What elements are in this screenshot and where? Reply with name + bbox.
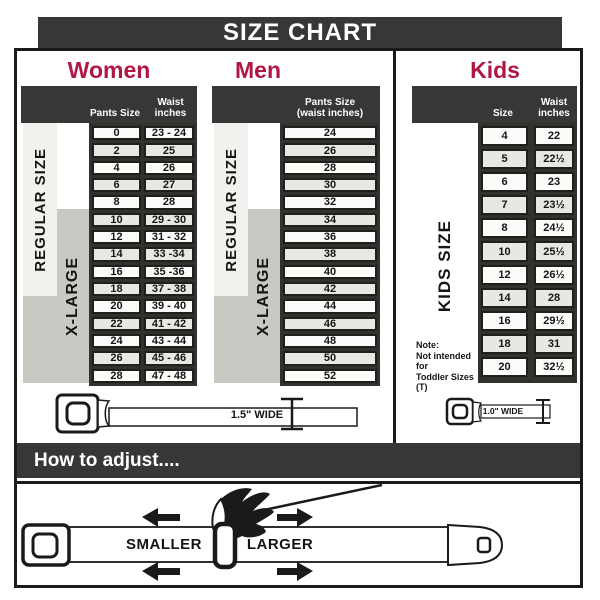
women-col-waist: Waist inches: [144, 97, 197, 119]
smaller-label: SMALLER: [111, 536, 217, 553]
table-cell: 22: [92, 317, 141, 331]
table-cell: 28: [534, 288, 574, 308]
larger-label: LARGER: [227, 536, 333, 553]
table-cell: 2: [92, 143, 141, 157]
kids-waist-column: 2222½2323½24½25½26½2829½3132½: [534, 126, 574, 380]
table-cell: 31 - 32: [144, 230, 194, 244]
kids-size-table: Size Waist inches KIDS SIZE Note: Not in…: [412, 86, 577, 383]
table-cell: 25½: [534, 241, 574, 261]
table-cell: 29½: [534, 311, 574, 331]
adult-belt-width-label: 1.5" WIDE: [224, 409, 290, 421]
women-waist-column: 23 - 242526272829 - 3031 - 3233 -3435 -3…: [144, 126, 194, 386]
table-cell: 47 - 48: [144, 369, 194, 383]
table-cell: 0: [92, 126, 141, 140]
table-cell: 24: [92, 334, 141, 348]
table-cell: 48: [283, 334, 377, 348]
men-regular-label: REGULAR SIZE: [223, 148, 240, 272]
table-cell: 36: [283, 230, 377, 244]
table-cell: 10: [92, 213, 141, 227]
table-cell: 32½: [534, 357, 574, 377]
smaller-arrow-bottom: [142, 562, 180, 581]
table-cell: 18: [481, 334, 528, 354]
table-cell: 8: [481, 218, 528, 238]
table-cell: 6: [92, 178, 141, 192]
table-cell: 4: [92, 161, 141, 175]
table-cell: 26: [283, 143, 377, 157]
kids-size-column: 45678101214161820: [481, 126, 528, 380]
table-cell: 43 - 44: [144, 334, 194, 348]
kids-panel-divider: [393, 51, 396, 443]
table-cell: 26½: [534, 265, 574, 285]
table-cell: 41 - 42: [144, 317, 194, 331]
belt-tip: [448, 525, 502, 565]
table-cell: 26: [92, 351, 141, 365]
table-cell: 35 -36: [144, 265, 194, 279]
page-title: SIZE CHART: [223, 19, 377, 47]
table-cell: 8: [92, 195, 141, 209]
table-cell: 28: [283, 161, 377, 175]
table-cell: 27: [144, 178, 194, 192]
table-cell: 5: [481, 149, 528, 169]
table-cell: 16: [92, 265, 141, 279]
table-cell: 39 - 40: [144, 299, 194, 313]
table-cell: 46: [283, 317, 377, 331]
larger-arrow-top: [277, 508, 313, 527]
kids-col-waist: Waist inches: [531, 97, 577, 119]
adjust-illustration: [17, 484, 580, 585]
table-cell: 14: [92, 247, 141, 261]
chart-panel: Women Men Kids Pants Size Waist inches X…: [14, 48, 583, 588]
table-cell: 23 - 24: [144, 126, 194, 140]
table-cell: 32: [283, 195, 377, 209]
table-cell: 25: [144, 143, 194, 157]
table-cell: 12: [92, 230, 141, 244]
table-cell: 38: [283, 247, 377, 261]
table-cell: 37 - 38: [144, 282, 194, 296]
table-cell: 20: [481, 357, 528, 377]
table-cell: 4: [481, 126, 528, 146]
table-cell: 6: [481, 172, 528, 192]
table-cell: 14: [481, 288, 528, 308]
table-cell: 18: [92, 282, 141, 296]
table-cell: 7: [481, 195, 528, 215]
table-cell: 20: [92, 299, 141, 313]
table-cell: 23: [534, 172, 574, 192]
men-pants-size-column: 242628303234363840424446485052: [283, 126, 377, 386]
table-cell: 50: [283, 351, 377, 365]
table-cell: 42: [283, 282, 377, 296]
adult-belt-illustration: [50, 392, 365, 436]
table-cell: 29 - 30: [144, 213, 194, 227]
table-cell: 40: [283, 265, 377, 279]
men-col-pants-size: Pants Size (waist inches): [280, 97, 380, 119]
kids-table-header: Size Waist inches: [412, 86, 577, 123]
women-size-table: Pants Size Waist inches X-LARGE REGULAR …: [21, 86, 197, 386]
table-cell: 24½: [534, 218, 574, 238]
table-cell: 44: [283, 299, 377, 313]
kids-belt-width-label: 1.0" WIDE: [473, 406, 533, 416]
table-cell: 33 -34: [144, 247, 194, 261]
size-chart-page: SIZE CHART Women Men Kids Pants Size Wai…: [0, 0, 600, 600]
table-cell: 22: [534, 126, 574, 146]
table-cell: 22½: [534, 149, 574, 169]
table-cell: 24: [283, 126, 377, 140]
men-regular-band: REGULAR SIZE: [214, 123, 248, 296]
how-to-adjust-bar: How to adjust....: [17, 443, 580, 478]
table-cell: 26: [144, 161, 194, 175]
table-cell: 52: [283, 369, 377, 383]
smaller-arrow-top: [142, 508, 180, 527]
women-table-header: Pants Size Waist inches: [21, 86, 197, 123]
women-regular-label: REGULAR SIZE: [32, 148, 49, 272]
kids-size-band-label: KIDS SIZE: [435, 220, 455, 312]
how-to-adjust-title: How to adjust....: [17, 450, 180, 472]
table-cell: 34: [283, 213, 377, 227]
men-table-header: Pants Size (waist inches): [212, 86, 380, 123]
women-regular-band: REGULAR SIZE: [23, 123, 57, 296]
table-cell: 28: [92, 369, 141, 383]
table-cell: 30: [283, 178, 377, 192]
women-heading: Women: [21, 56, 197, 84]
kids-note: Note: Not intended for Toddler Sizes (T): [416, 340, 480, 393]
larger-arrow-bottom: [277, 562, 313, 581]
table-cell: 16: [481, 311, 528, 331]
table-cell: 10: [481, 241, 528, 261]
women-col-pants-size: Pants Size: [89, 108, 141, 119]
kids-heading: Kids: [435, 56, 555, 84]
women-pants-size-column: 0246810121416182022242628: [92, 126, 141, 386]
table-cell: 31: [534, 334, 574, 354]
men-size-table: Pants Size (waist inches) X-LARGE REGULA…: [212, 86, 380, 386]
table-cell: 28: [144, 195, 194, 209]
title-bar: SIZE CHART: [38, 17, 562, 48]
table-cell: 23½: [534, 195, 574, 215]
women-xlarge-label: X-LARGE: [64, 257, 82, 336]
men-xlarge-label: X-LARGE: [255, 257, 273, 336]
table-cell: 45 - 46: [144, 351, 194, 365]
table-cell: 12: [481, 265, 528, 285]
kids-col-size: Size: [478, 108, 528, 119]
men-heading: Men: [198, 56, 318, 84]
